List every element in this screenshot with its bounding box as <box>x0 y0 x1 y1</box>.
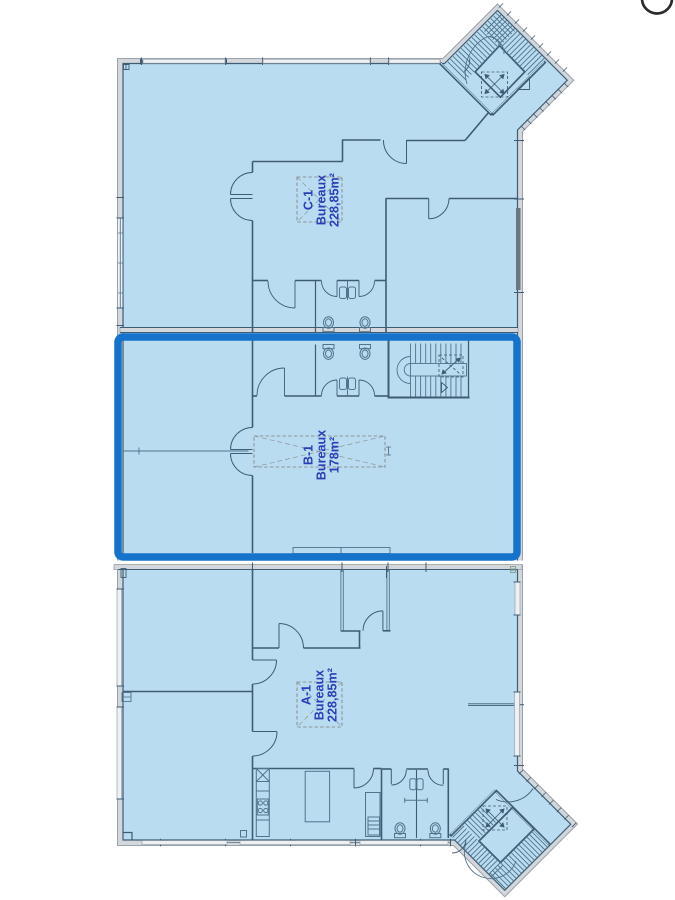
svg-text:Bureaux: Bureaux <box>315 175 329 225</box>
svg-text:228,85m²: 228,85m² <box>328 173 342 227</box>
svg-text:178m²: 178m² <box>328 437 342 473</box>
svg-text:C-1: C-1 <box>302 190 316 210</box>
svg-text:B-1: B-1 <box>302 445 316 465</box>
svg-text:Bureaux: Bureaux <box>313 670 327 720</box>
svg-text:Bureaux: Bureaux <box>315 430 329 480</box>
svg-text:228,85m²: 228,85m² <box>326 668 340 722</box>
svg-text:A-1: A-1 <box>300 685 314 705</box>
